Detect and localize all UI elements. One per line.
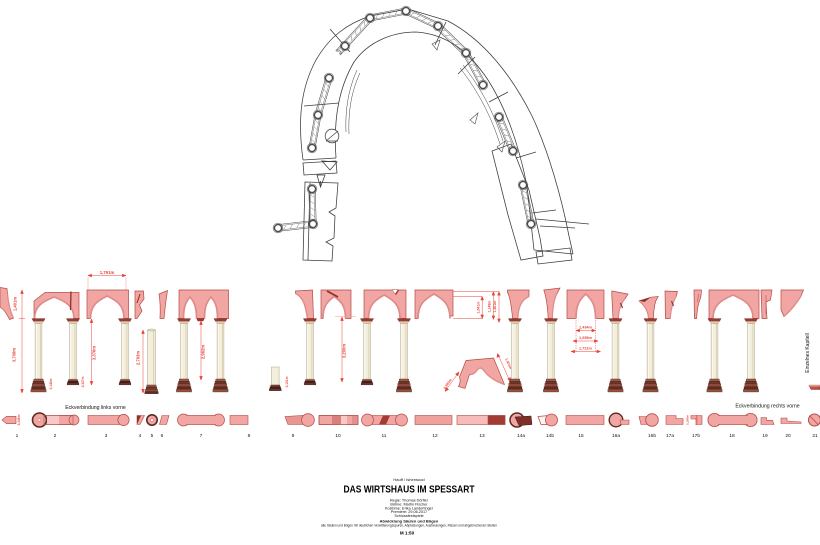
svg-text:M 1:50: M 1:50 (400, 531, 415, 536)
svg-text:13: 13 (479, 433, 485, 439)
svg-text:19: 19 (762, 433, 768, 439)
svg-text:10: 10 (335, 433, 341, 439)
svg-text:11: 11 (382, 433, 387, 439)
svg-text:14b: 14b (546, 433, 554, 439)
svg-text:0,140m: 0,140m (695, 415, 699, 426)
svg-text:3,200m: 3,200m (342, 344, 347, 358)
svg-text:16b: 16b (648, 433, 656, 439)
svg-text:1,148m: 1,148m (487, 301, 491, 313)
svg-text:15: 15 (578, 433, 584, 439)
svg-text:3: 3 (105, 433, 108, 439)
svg-text:0,327m: 0,327m (81, 376, 85, 387)
svg-text:5: 5 (151, 433, 154, 439)
svg-text:3,708m: 3,708m (12, 348, 17, 362)
svg-text:Schlossfestspiele: Schlossfestspiele (394, 514, 423, 518)
svg-text:2: 2 (54, 433, 57, 439)
svg-text:1: 1 (16, 433, 19, 439)
svg-text:2,962m: 2,962m (201, 345, 206, 359)
svg-text:17b: 17b (692, 433, 700, 439)
svg-text:20: 20 (785, 433, 791, 439)
svg-text:Hauff / Isherwood: Hauff / Isherwood (393, 477, 424, 482)
svg-text:1,041m: 1,041m (476, 302, 480, 314)
svg-text:17a: 17a (666, 433, 674, 439)
svg-text:16a: 16a (612, 433, 620, 439)
svg-text:Einzelnes Kapitell: Einzelnes Kapitell (805, 333, 811, 372)
svg-text:1,401m: 1,401m (493, 301, 497, 313)
svg-text:alle Säulen und Bögen mit deut: alle Säulen und Bögen mit deutlichen Ver… (321, 524, 497, 528)
svg-text:12: 12 (432, 433, 438, 439)
svg-text:0,345m: 0,345m (17, 414, 21, 425)
svg-text:Eckverbindung rechts vorne: Eckverbindung rechts vorne (735, 404, 799, 410)
svg-text:8: 8 (248, 433, 251, 439)
svg-text:1,721m: 1,721m (579, 347, 593, 351)
svg-text:0,140m: 0,140m (49, 378, 53, 389)
svg-text:2,793m: 2,793m (136, 351, 141, 365)
svg-text:3,376m: 3,376m (92, 346, 97, 360)
svg-text:7: 7 (200, 433, 203, 439)
svg-text:4: 4 (139, 433, 142, 439)
svg-text:0,35m: 0,35m (811, 387, 818, 390)
svg-text:1,401m: 1,401m (13, 297, 18, 311)
svg-text:1,791m: 1,791m (100, 270, 115, 275)
svg-text:6: 6 (161, 433, 164, 439)
svg-text:18: 18 (729, 433, 735, 439)
svg-text:21: 21 (812, 433, 818, 439)
svg-text:DAS WIRTSHAUS IM SPESSART: DAS WIRTSHAUS IM SPESSART (344, 484, 475, 496)
svg-text:9: 9 (292, 433, 295, 439)
svg-text:0,101m: 0,101m (285, 376, 289, 387)
svg-text:Eckverbindung links vorne: Eckverbindung links vorne (65, 405, 126, 411)
svg-text:1,655m: 1,655m (579, 336, 593, 340)
svg-text:1,434m: 1,434m (579, 326, 593, 330)
svg-text:14a: 14a (517, 433, 525, 439)
svg-text:0,180m: 0,180m (686, 415, 690, 426)
